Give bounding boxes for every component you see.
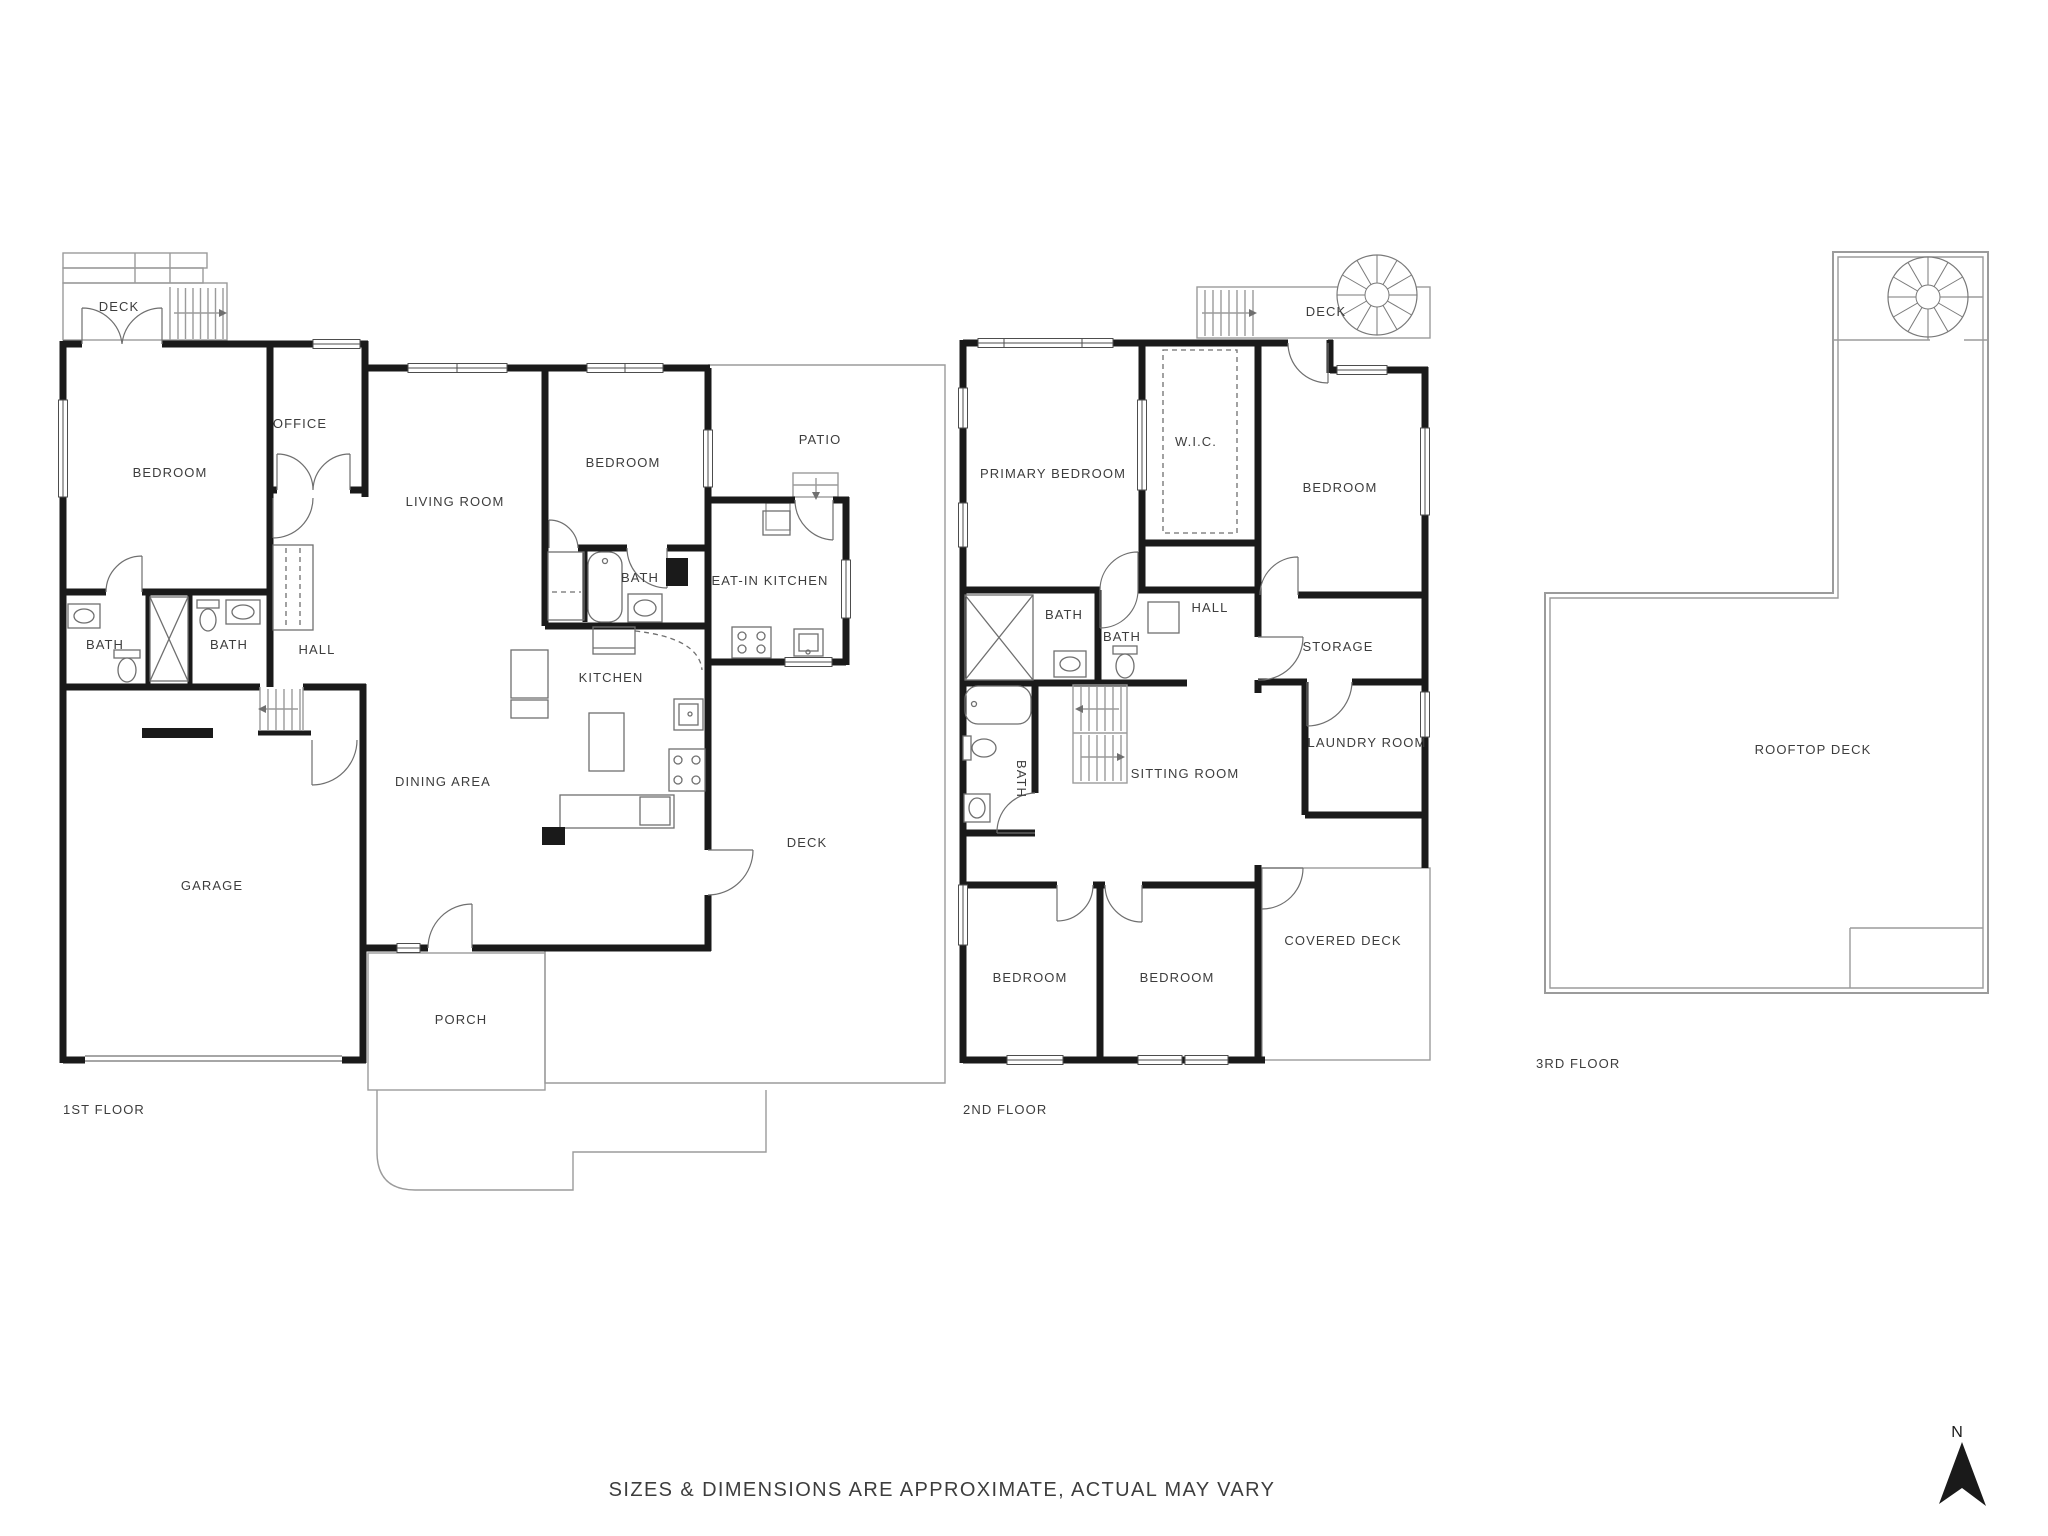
toilet-icon [1113, 646, 1137, 678]
stairs-icon [1073, 685, 1127, 783]
room-label-sitting-room: SITTING ROOM [1131, 766, 1240, 781]
north-arrow-glyph [1939, 1442, 1986, 1506]
garage-beam [142, 728, 213, 738]
door-arc [1100, 590, 1138, 628]
spiral-stairs-icon [1888, 257, 1968, 337]
room-label-bedroom-sw: BEDROOM [993, 970, 1068, 985]
stove-icon [732, 627, 771, 658]
rooftop-deck-outline [1545, 252, 1988, 993]
room-label-bath2: BATH [1103, 629, 1141, 644]
fridge-icon [511, 650, 548, 718]
closet [1148, 602, 1179, 633]
room-label-bath: BATH [621, 570, 659, 585]
floor-label-2: 2ND FLOOR [963, 1102, 1047, 1117]
door-arc [708, 850, 753, 895]
floor-plan-drawing: DECK BEDROOM OFFICE LIVING ROOM BEDROOM … [0, 0, 2048, 1536]
door-arc [1262, 868, 1303, 909]
door-arc [1105, 885, 1142, 922]
rooftop-deck-inner-line [1550, 257, 1983, 988]
french-door-arc [277, 454, 350, 490]
door-arc [1307, 682, 1352, 726]
room-label-bath3: BATH [1014, 760, 1029, 798]
room-label-storage: STORAGE [1302, 639, 1373, 654]
door-arc [549, 520, 578, 548]
door-arc [1288, 343, 1328, 383]
door-arc [1260, 557, 1298, 595]
sink-icon [68, 604, 100, 628]
floor1-doors [82, 308, 833, 948]
room-label-covered-deck: COVERED DECK [1284, 933, 1401, 948]
door-arc [1100, 552, 1138, 590]
room-label-patio: PATIO [799, 432, 842, 447]
floor-plan-2: DECK PRIMARY BEDROOM W.I.C. BEDROOM BATH… [959, 255, 1431, 1117]
room-label-hall: HALL [1192, 600, 1229, 615]
room-label-bedroom-s: BEDROOM [1140, 970, 1215, 985]
floor-plan-1: DECK BEDROOM OFFICE LIVING ROOM BEDROOM … [59, 253, 946, 1190]
floor1-outdoor-outlines [63, 253, 945, 1190]
bathtub-icon [588, 552, 622, 622]
lower-roof-notch [1850, 928, 1983, 988]
closet [548, 552, 584, 620]
room-label-porch: PORCH [435, 1012, 487, 1027]
floor2-stairs [1073, 255, 1417, 783]
room-label-bath2: BATH [210, 637, 248, 652]
north-arrow-icon: N [1939, 1424, 1986, 1506]
deck-outline [545, 365, 945, 1083]
door-arc [273, 498, 313, 538]
room-label-deck: DECK [99, 299, 140, 314]
stove-icon [669, 749, 705, 791]
room-label-wic: W.I.C. [1175, 434, 1217, 449]
sink-icon [674, 699, 703, 730]
floor1-walls [63, 341, 849, 1063]
floor-label-1: 1ST FLOOR [63, 1102, 145, 1117]
door-arc [1258, 637, 1303, 680]
door-arc [1057, 885, 1093, 921]
cabinet [593, 627, 635, 654]
room-label-bath1: BATH [86, 637, 124, 652]
floor-plan-page: DECK BEDROOM OFFICE LIVING ROOM BEDROOM … [0, 0, 2048, 1536]
sink-icon [1054, 651, 1086, 677]
room-label-living-room: LIVING ROOM [406, 494, 505, 509]
disclaimer-text: SIZES & DIMENSIONS ARE APPROXIMATE, ACTU… [609, 1479, 1276, 1501]
counter-curve [635, 631, 702, 670]
floor-plan-3: ROOFTOP DECK 3RD FLOOR [1536, 252, 1988, 1071]
garage-door [85, 1053, 342, 1066]
sink-icon [226, 600, 260, 624]
toilet-icon [197, 600, 219, 631]
kitchen-island [589, 713, 624, 771]
counter [560, 795, 674, 828]
room-label-hall: HALL [299, 642, 336, 657]
room-label-deck-right: DECK [787, 835, 828, 850]
patio-landing [766, 503, 790, 530]
chase [542, 827, 565, 845]
floor-label-3: 3RD FLOOR [1536, 1056, 1620, 1071]
door-arc [997, 793, 1035, 833]
sink-icon [628, 594, 662, 622]
room-label-office: OFFICE [273, 416, 327, 431]
spiral-stairs-icon [1337, 255, 1417, 335]
door-arc [106, 556, 142, 592]
shower-icon [965, 595, 1033, 680]
door-arc [312, 740, 357, 785]
room-label-eat-in-kitchen: EAT-IN KITCHEN [711, 573, 828, 588]
sink-icon [794, 629, 823, 656]
room-label-bedroom2: BEDROOM [586, 455, 661, 470]
door-arc [428, 904, 472, 948]
floor1-labels: DECK BEDROOM OFFICE LIVING ROOM BEDROOM … [63, 299, 841, 1117]
shower-icon [150, 597, 188, 681]
toilet-icon [114, 650, 140, 682]
cabinet [763, 511, 790, 535]
sink-icon [964, 794, 990, 822]
room-label-kitchen: KITCHEN [579, 670, 644, 685]
room-label-bedroom: BEDROOM [133, 465, 208, 480]
room-label-primary-bedroom: PRIMARY BEDROOM [980, 466, 1126, 481]
room-label-laundry: LAUNDRY ROOM [1308, 735, 1427, 750]
north-label: N [1951, 1424, 1963, 1441]
room-label-bedroom-ne: BEDROOM [1303, 480, 1378, 495]
room-label-garage: GARAGE [181, 878, 243, 893]
room-label-bath1: BATH [1045, 607, 1083, 622]
floor1-windows [59, 340, 851, 1067]
room-label-dining-area: DINING AREA [395, 774, 491, 789]
deck-board-band [63, 268, 203, 283]
chase [666, 558, 688, 586]
toilet-icon [963, 736, 996, 760]
bathtub-icon [965, 686, 1031, 724]
walkway-outline [377, 1090, 766, 1190]
door-arc [795, 500, 833, 540]
room-label-rooftop-deck: ROOFTOP DECK [1755, 742, 1872, 757]
closet [273, 545, 313, 630]
covered-deck-outline [1262, 868, 1430, 1060]
room-label-deck: DECK [1306, 304, 1347, 319]
